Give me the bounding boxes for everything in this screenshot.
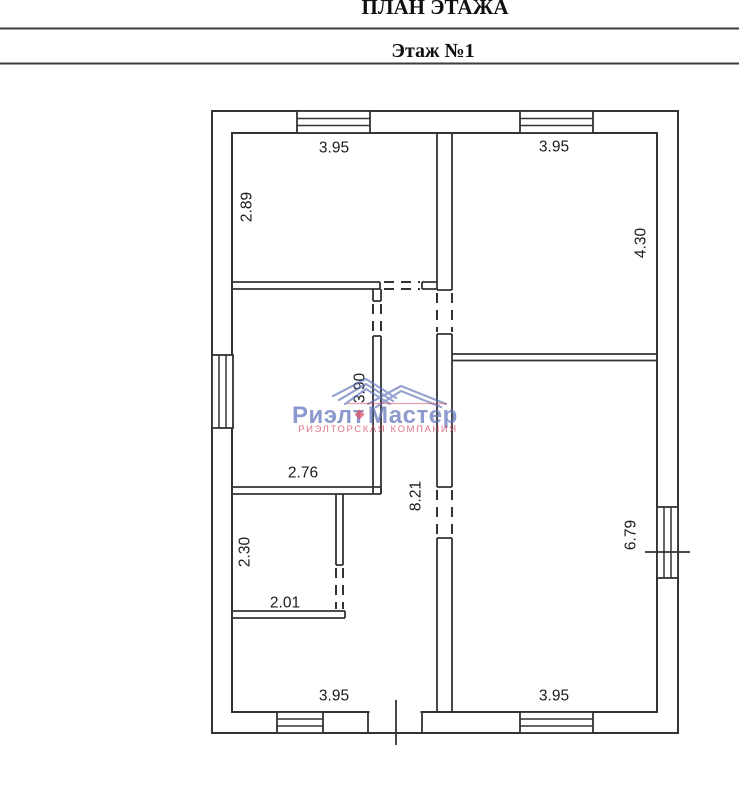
entrance-door [368, 700, 422, 745]
lower-left-room-bottom-wall [232, 611, 345, 618]
dimension-label-top-left-width: 3.95 [319, 139, 349, 156]
dimension-label-mid-left-width: 2.76 [288, 464, 318, 481]
window-bottom-right [520, 712, 593, 733]
floor-plan-page: ПЛАН ЭТАЖА Этаж №1 [0, 0, 739, 805]
top-left-room-bottom-wall [232, 282, 437, 289]
dimension-label-bottom-right-width: 3.95 [539, 687, 569, 704]
lower-left-room-right-wall [336, 494, 343, 609]
dimension-label-top-right-height: 4.30 [632, 228, 649, 259]
watermark: Риэлт Мастер РИЭЛТОРСКАЯ КОМПАНИЯ [292, 379, 458, 435]
right-side-dividing-wall [452, 354, 657, 361]
window-bottom-left [277, 712, 323, 733]
window-top-left [297, 111, 370, 133]
floor-subtitle: Этаж №1 [391, 40, 474, 62]
dimension-label-top-right-width: 3.95 [539, 138, 569, 155]
mid-left-room-bottom-wall [232, 487, 381, 494]
window-left [212, 355, 233, 428]
dimension-label-corridor-height: 8.21 [407, 481, 424, 511]
dimension-label-lower-left-width: 2.01 [270, 594, 300, 611]
page-title: ПЛАН ЭТАЖА [361, 0, 509, 19]
dimension-label-top-left-height: 2.89 [238, 192, 255, 222]
dimension-label-bottom-left-width: 3.95 [319, 687, 349, 704]
dimension-label-bottom-right-height: 6.79 [622, 520, 639, 550]
window-top-right [520, 111, 593, 133]
watermark-tagline: РИЭЛТОРСКАЯ КОМПАНИЯ [298, 424, 458, 435]
window-right [645, 507, 690, 578]
dimension-label-lower-left-height: 2.30 [236, 537, 253, 568]
